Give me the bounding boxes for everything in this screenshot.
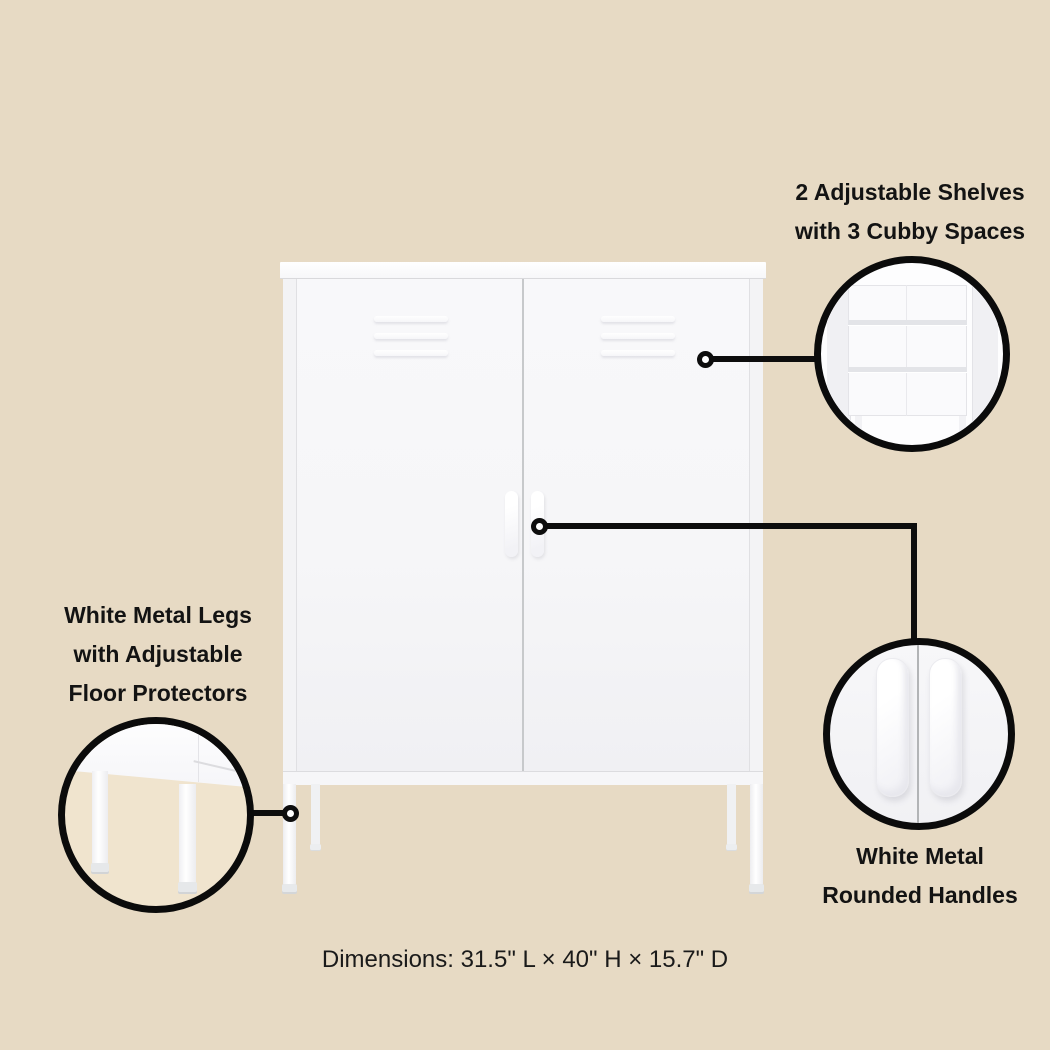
rear-right-floor-protector <box>726 844 737 850</box>
vent-slat <box>601 333 675 339</box>
adjustable-shelf <box>848 320 967 326</box>
cabinet-top-panel <box>280 262 766 279</box>
product-infographic-canvas: 2 Adjustable Shelves with 3 Cubby Spaces… <box>0 0 1050 1050</box>
vent-slat <box>601 350 675 356</box>
cabinet-interior <box>848 285 967 416</box>
interior-view-leg <box>959 416 966 434</box>
legs-label-line-3: Floor Protectors <box>8 674 308 713</box>
floor-protector-zoom-left <box>91 863 109 872</box>
handles-callout-label: White Metal Rounded Handles <box>770 837 1050 915</box>
rounded-handle-zoom-right <box>929 658 962 797</box>
shelves-label-line-2: with 3 Cubby Spaces <box>760 212 1050 251</box>
door-edge-zoom-line <box>198 724 199 782</box>
shelves-detail-circle <box>814 256 1010 452</box>
floor-protector-zoom-right <box>178 882 197 892</box>
legs-label-line-1: White Metal Legs <box>8 596 308 635</box>
handles-connector-dot-icon <box>531 518 548 535</box>
shelves-label-line-1: 2 Adjustable Shelves <box>760 173 1050 212</box>
handles-callout-line-horizontal <box>539 523 917 529</box>
door-gap-line <box>522 279 524 771</box>
rounded-handle-zoom-left <box>876 658 909 797</box>
handles-detail-circle <box>823 638 1015 830</box>
shelves-callout-line <box>705 356 817 362</box>
cabinet-front-left-leg <box>283 784 296 884</box>
open-door-right-panel <box>972 283 998 423</box>
rear-left-floor-protector <box>310 844 321 850</box>
adjustable-shelf <box>848 367 967 373</box>
dimensions-text: Dimensions: 31.5" L × 40" H × 15.7" D <box>225 946 825 974</box>
vent-slat <box>374 316 448 322</box>
left-door-handle <box>505 491 518 557</box>
vent-slat <box>374 333 448 339</box>
door-gap-zoom-line <box>917 645 919 823</box>
vent-slat <box>374 350 448 356</box>
interior-back-seam <box>906 285 907 416</box>
cabinet-rear-right-leg <box>727 784 736 844</box>
handles-label-line-1: White Metal <box>770 837 1050 876</box>
cabinet-base-frame <box>283 771 763 785</box>
legs-detail-circle <box>58 717 254 913</box>
legs-connector-dot-icon <box>282 805 299 822</box>
metal-leg-zoom-right <box>179 784 196 882</box>
shelves-connector-dot-icon <box>697 351 714 368</box>
interior-view-leg <box>855 416 862 434</box>
legs-label-line-2: with Adjustable <box>8 635 308 674</box>
metal-leg-zoom-left <box>92 771 108 863</box>
handles-callout-line-vertical <box>911 523 917 645</box>
front-left-floor-protector <box>282 884 297 892</box>
shelves-callout-label: 2 Adjustable Shelves with 3 Cubby Spaces <box>760 173 1050 251</box>
cabinet-front-right-leg <box>750 784 763 884</box>
front-right-floor-protector <box>749 884 764 892</box>
legs-callout-label: White Metal Legs with Adjustable Floor P… <box>8 596 308 713</box>
handles-label-line-2: Rounded Handles <box>770 876 1050 915</box>
vent-slat <box>601 316 675 322</box>
cabinet-rear-left-leg <box>311 784 320 844</box>
